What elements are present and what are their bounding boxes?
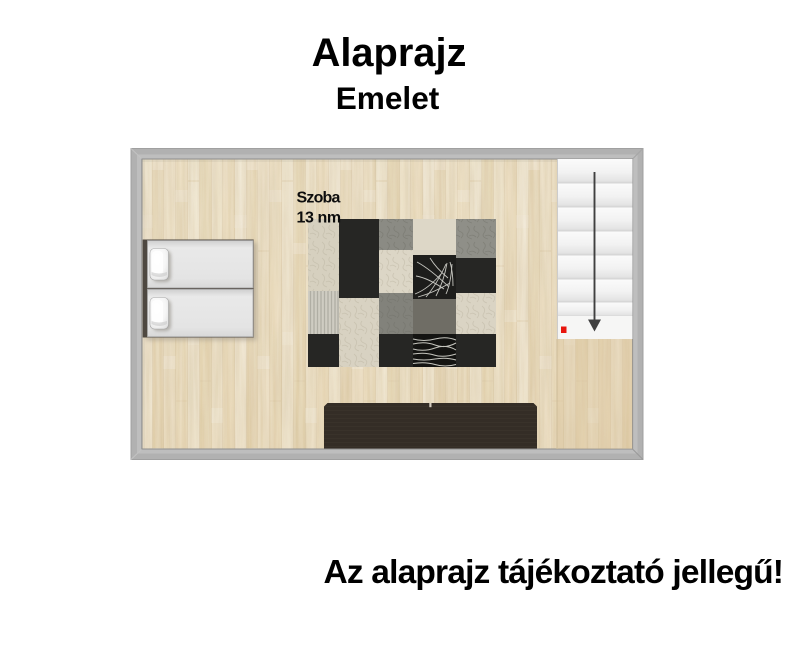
svg-text:13 nm: 13 nm — [297, 210, 341, 227]
svg-text:Szoba: Szoba — [297, 190, 341, 207]
